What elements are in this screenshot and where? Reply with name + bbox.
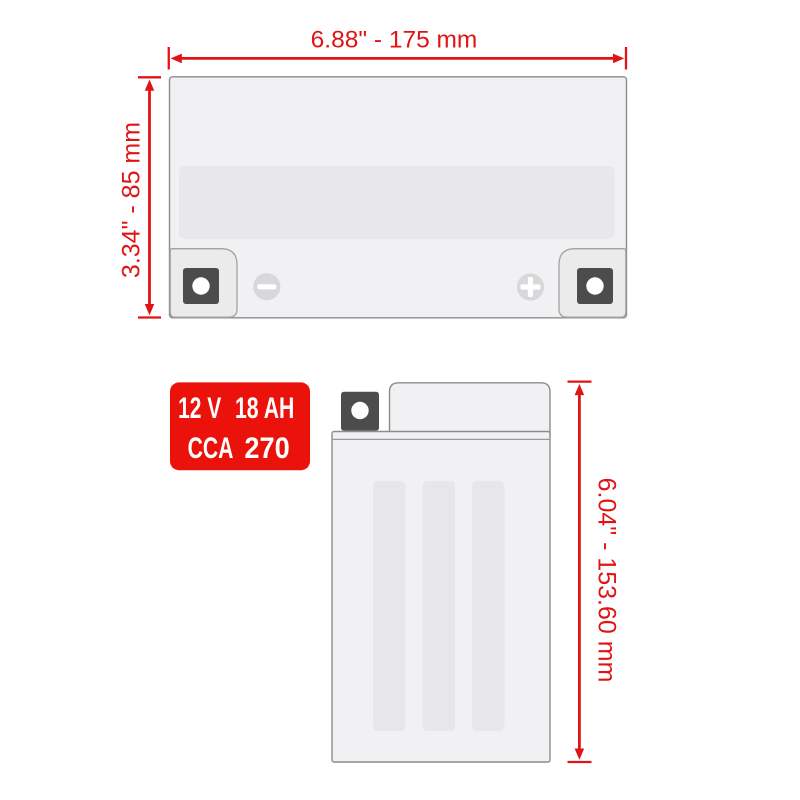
svg-text:6.88" - 175 mm: 6.88" - 175 mm	[311, 27, 478, 54]
svg-text:12 V: 12 V	[178, 393, 221, 425]
svg-text:CCA: CCA	[188, 433, 234, 465]
svg-text:3.34" - 85 mm: 3.34" - 85 mm	[118, 122, 146, 278]
svg-text:270: 270	[244, 432, 289, 465]
svg-text:18 AH: 18 AH	[235, 393, 294, 425]
svg-text:6.04" - 153.60 mm: 6.04" - 153.60 mm	[593, 478, 621, 683]
